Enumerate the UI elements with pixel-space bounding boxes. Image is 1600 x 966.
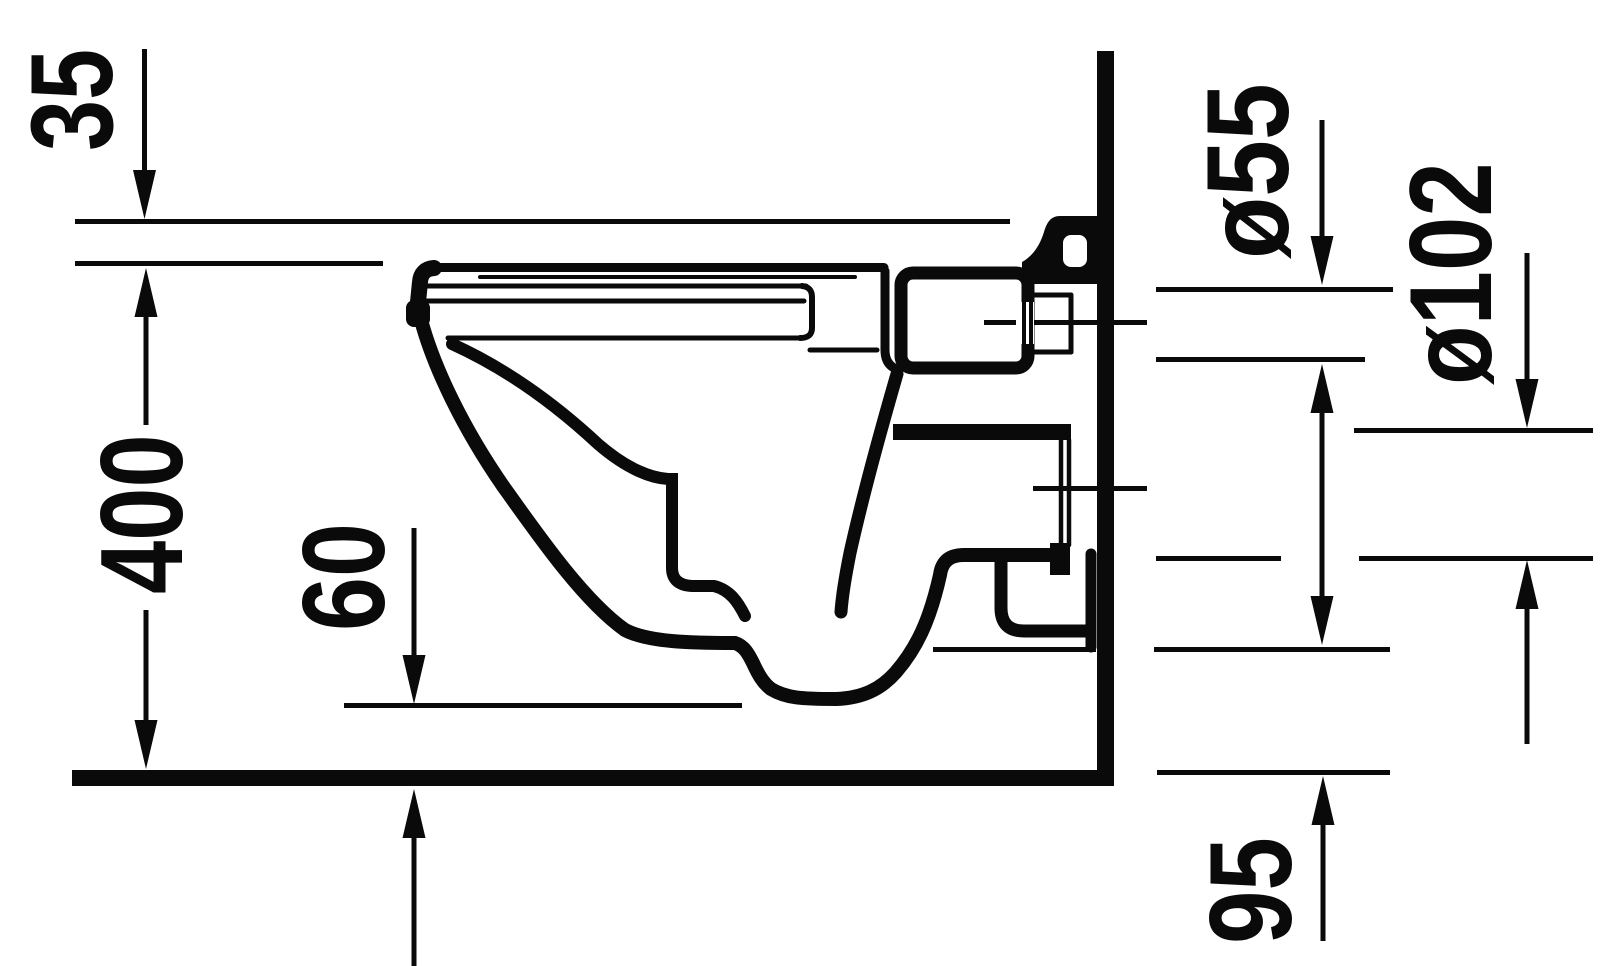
svg-text:60: 60 [278,523,409,631]
svg-text:ø102: ø102 [1385,162,1516,385]
svg-text:95: 95 [1185,837,1316,944]
svg-text:ø55: ø55 [1184,83,1314,259]
svg-text:35: 35 [7,49,137,151]
svg-text:400: 400 [76,434,207,594]
